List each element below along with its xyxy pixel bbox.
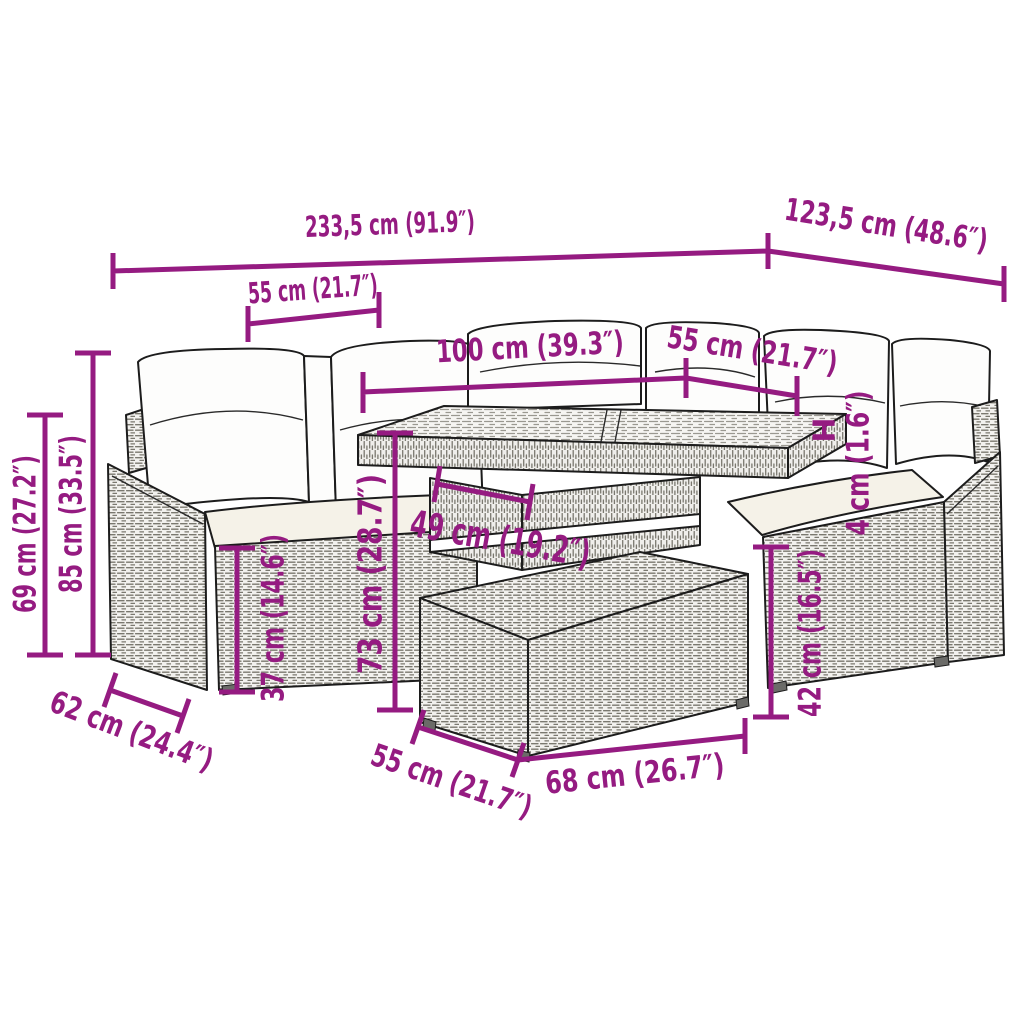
furniture-dimension-diagram: 233,5 cm (91.9″) 123,5 cm (48.6″) 55 cm … (0, 0, 1024, 1024)
right-armrest (944, 452, 1004, 662)
dim-overall-width-label: 233,5 cm (91.9″) (304, 204, 475, 244)
left-back-pillow-1 (138, 349, 309, 510)
dim-tabletop-thickness-label: 4 cm (1.6″) (841, 391, 877, 536)
right-armrest-post (972, 400, 1000, 463)
dim-back-height-label: 85 cm (33.5″) (54, 435, 90, 593)
dim-left-seat-width-label: 55 cm (21.7″) (247, 268, 379, 311)
dim-tabletop-thickness-prefix: H (805, 417, 840, 442)
dimension-line (768, 251, 1004, 302)
dim-stool-height-label: 42 cm (16.5″) (793, 549, 829, 717)
dim-overall-depth: 123,5 cm (48.6″) (768, 192, 1004, 302)
dim-back-height: 85 cm (33.5″) (54, 353, 112, 655)
dimension-line (113, 233, 768, 289)
diagram-canvas: 233,5 cm (91.9″) 123,5 cm (48.6″) 55 cm … (0, 0, 1024, 1024)
dim-left-seat-width: 55 cm (21.7″) (247, 268, 379, 342)
dim-seat-height-label: 37 cm (14.6″) (256, 534, 292, 702)
dim-table-height-label: 73 cm (28.7″) (351, 474, 390, 674)
dim-armrest-height-label: 69 cm (27.2″) (8, 455, 44, 613)
dim-seat-depth: 62 cm (24.4″) (45, 673, 218, 779)
sofa-foot (934, 656, 949, 667)
dim-overall-width: 233,5 cm (91.9″) (113, 204, 768, 289)
dim-overall-depth-label: 123,5 cm (48.6″) (782, 192, 990, 260)
